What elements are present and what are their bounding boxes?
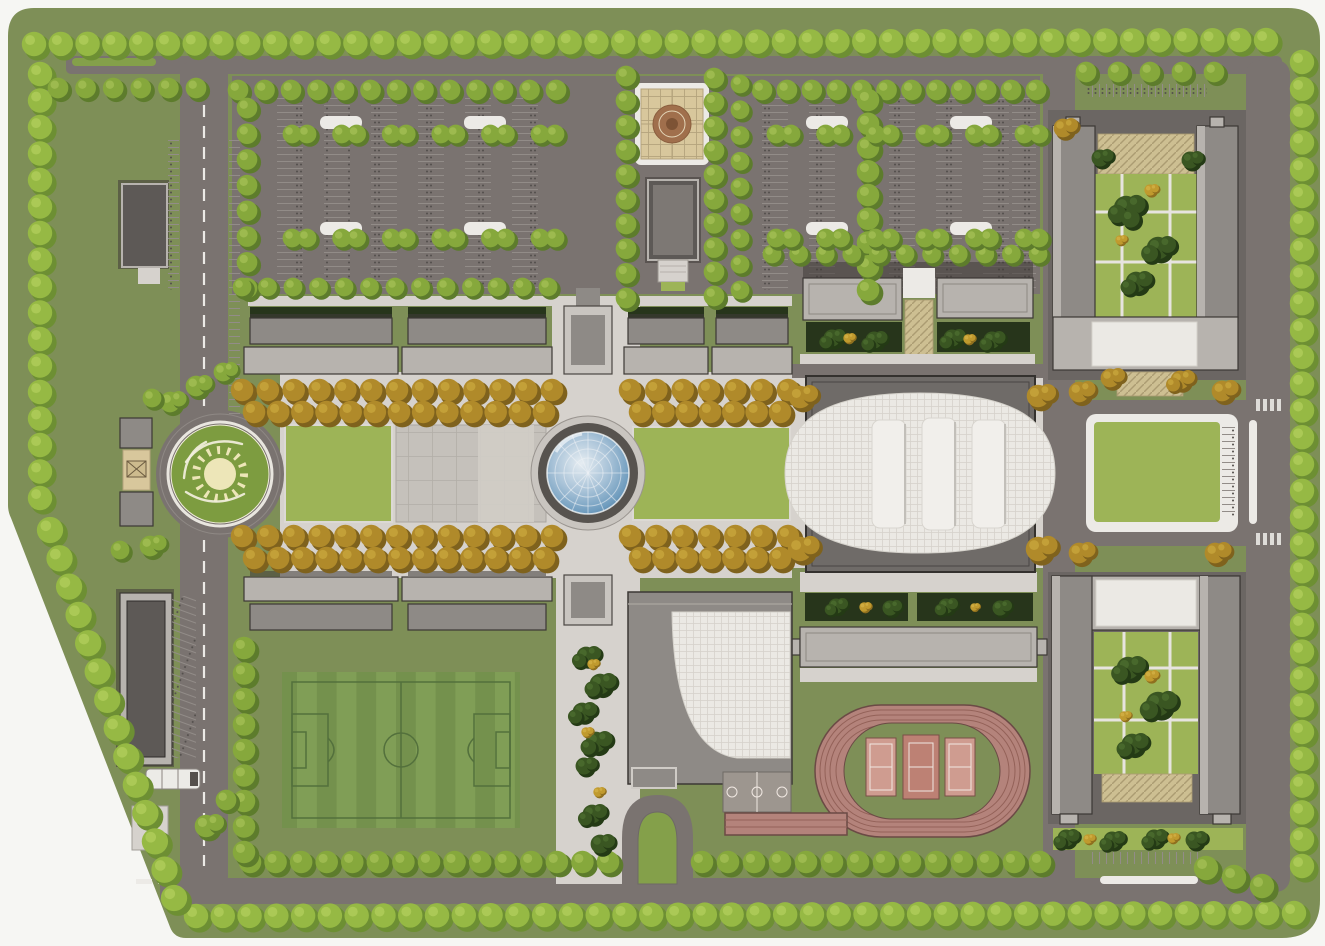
entrance-roundabout (156, 410, 284, 538)
east-lawn (633, 427, 790, 520)
sprint-straight (725, 813, 847, 835)
west-lawn (285, 425, 392, 522)
oval-assembly-hall (785, 262, 1055, 667)
oval-entry-building-west (803, 278, 902, 320)
oval-hall-roof (785, 393, 1055, 553)
axis-tower-south (564, 575, 612, 625)
shuttle-bus (146, 769, 200, 789)
central-glass-dome (531, 416, 645, 530)
bar-building (624, 314, 708, 374)
west-wing (1052, 576, 1092, 824)
bar-building (712, 314, 792, 374)
soccer-field (282, 672, 520, 828)
tennis-court (945, 738, 975, 796)
roof-skylight-bands (872, 418, 1006, 530)
tennis-court (903, 735, 939, 799)
south-connector (1053, 317, 1238, 370)
bar-building (244, 314, 398, 374)
compass-medallion (653, 105, 691, 143)
entrance-plaza (635, 83, 709, 165)
oval-entry-building-east (937, 278, 1033, 318)
south-perimeter-road (160, 878, 1266, 904)
basketball-court (723, 772, 791, 812)
tennis-court (866, 738, 896, 796)
curved-roof-building (628, 592, 792, 784)
loop-kiosk (632, 768, 676, 788)
northeast-lawn (1086, 414, 1257, 532)
west-wing (1053, 117, 1095, 318)
bar-building (402, 314, 552, 374)
campus-master-plan (0, 0, 1325, 946)
tennis-courts (866, 735, 975, 799)
east-wing (1200, 576, 1240, 824)
paved-tile-plaza (396, 425, 546, 522)
bar-building (244, 571, 398, 630)
main-gate (120, 418, 153, 526)
site-plan-svg (0, 0, 1325, 946)
bar-building (402, 571, 552, 630)
east-wing (1197, 117, 1238, 318)
